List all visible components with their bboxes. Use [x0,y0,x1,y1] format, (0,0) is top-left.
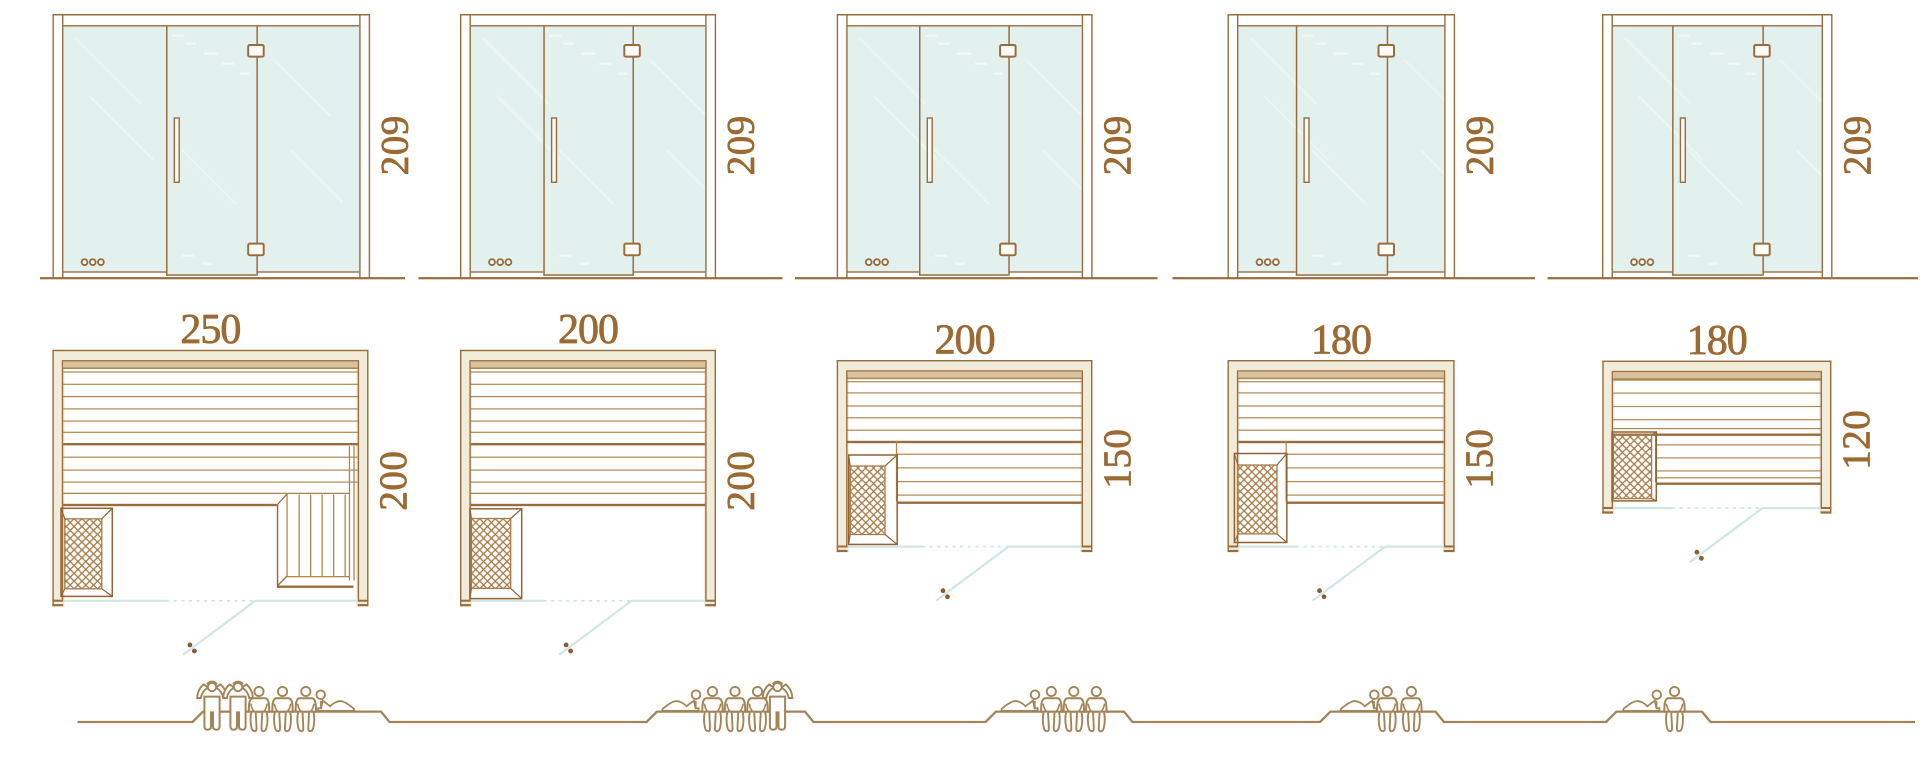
svg-text:209: 209 [1096,115,1139,175]
svg-text:200: 200 [558,307,618,353]
svg-text:250: 250 [180,307,240,353]
svg-text:180: 180 [1311,317,1371,363]
svg-text:180: 180 [1687,318,1747,364]
svg-text:200: 200 [935,317,995,363]
svg-text:150: 150 [1458,429,1501,489]
svg-text:209: 209 [719,115,762,175]
svg-text:209: 209 [1458,115,1501,175]
svg-text:120: 120 [1835,410,1878,470]
svg-text:209: 209 [1836,115,1879,175]
svg-text:200: 200 [719,451,762,511]
svg-text:150: 150 [1096,429,1139,489]
svg-text:209: 209 [373,115,416,175]
svg-text:200: 200 [372,451,415,511]
